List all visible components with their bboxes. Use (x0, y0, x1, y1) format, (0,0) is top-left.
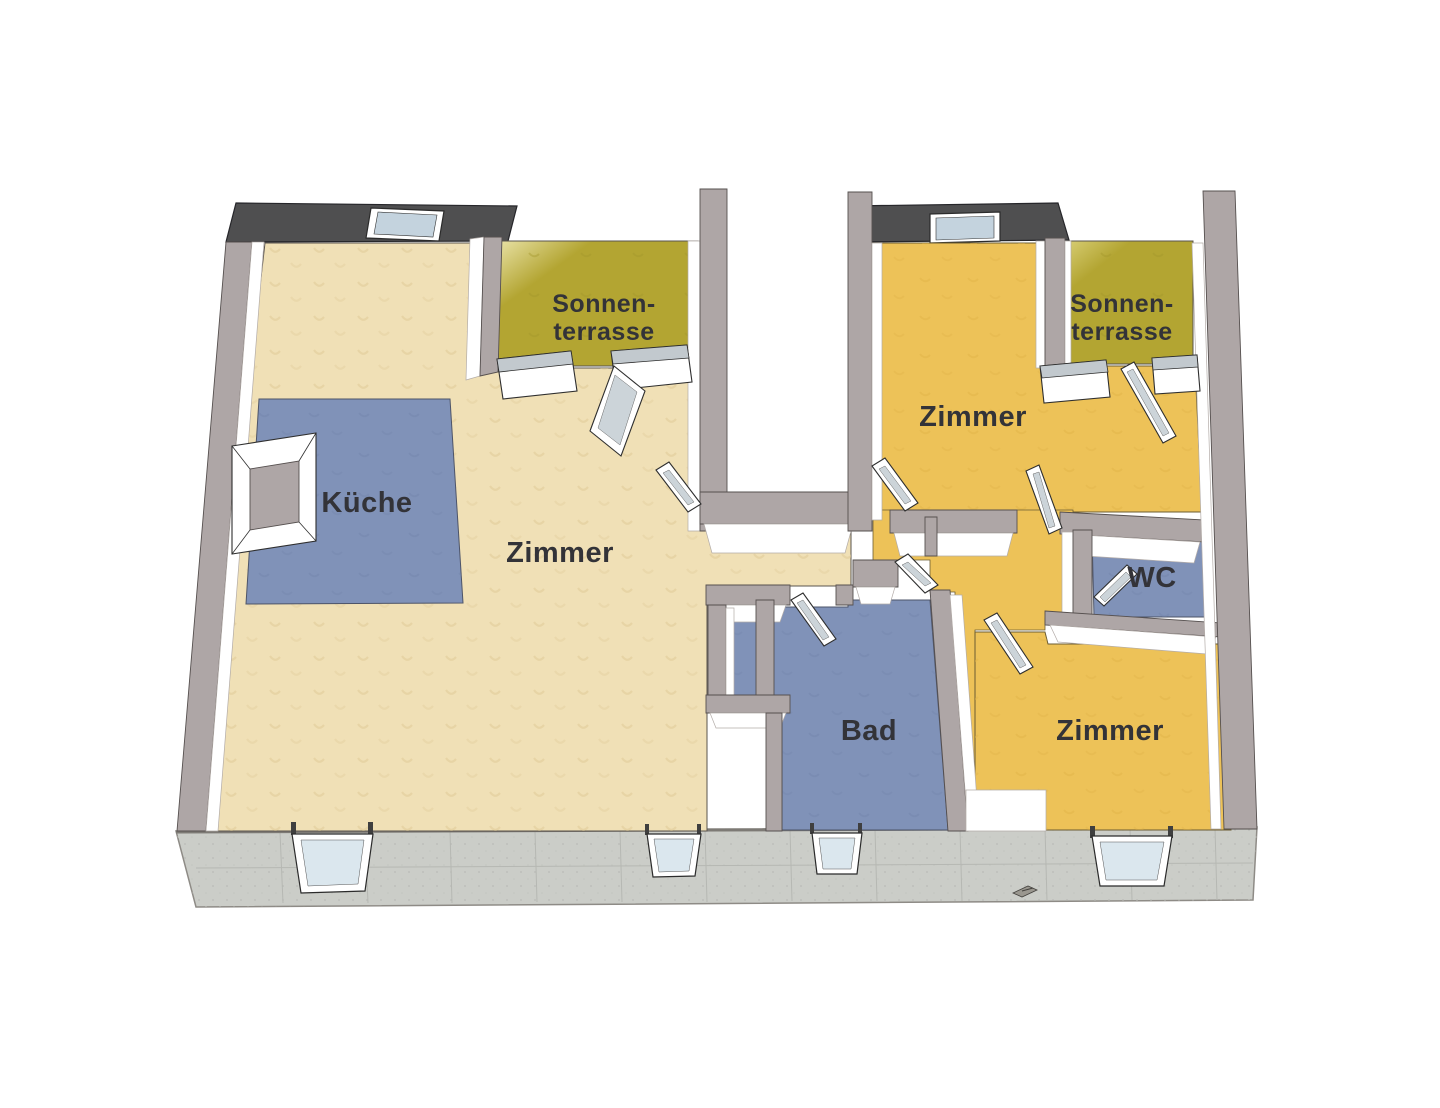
label-zimmer-unten-rechts: Zimmer (1056, 715, 1164, 747)
label-sonnenterrasse-links-2: terrasse (553, 318, 654, 346)
label-sonnenterrasse-links-1: Sonnen- (552, 290, 656, 318)
terrace-right-wall-face-l (1036, 241, 1045, 368)
void-bottom-wall-face (704, 524, 853, 553)
corridor-bottom-wall (853, 560, 898, 587)
terrace-right-door-unit-1 (1040, 360, 1110, 403)
bottom-step-face (966, 790, 1046, 831)
void-left-wall (700, 189, 727, 531)
label-sonnenterrasse-rechts-2: terrasse (1071, 318, 1172, 346)
skylight-left (366, 208, 444, 241)
label-zimmer-oben-rechts: Zimmer (919, 401, 1027, 433)
floorplan-canvas: Sonnen- terrasse Küche Zimmer Zimmer Son… (0, 0, 1440, 1108)
label-wc: WC (1127, 562, 1176, 594)
corridor-bottom-wall-face (856, 587, 895, 604)
wc-left-wall-face (1062, 532, 1073, 616)
bad-lobby-wall-1 (708, 605, 726, 702)
skylight-right (930, 212, 1000, 243)
label-sonnenterrasse-rechts-1: Sonnen- (1070, 290, 1174, 318)
void-bottom-wall (700, 492, 857, 524)
right-apt-left-wall (848, 192, 872, 531)
label-zimmer-links: Zimmer (506, 537, 614, 569)
label-bad: Bad (841, 715, 897, 747)
kitchen-window-bay (232, 433, 316, 554)
terrace-right-left-wall (1045, 238, 1065, 368)
terrace-right-door-unit-2 (1152, 355, 1200, 394)
roof-left (226, 203, 517, 242)
void-left-wall-face (688, 241, 700, 531)
corridor-top-wall-left (890, 510, 1017, 533)
bad-left-wall (766, 713, 782, 831)
label-kueche: Küche (321, 487, 412, 519)
bad-lobby-wall-2 (756, 600, 774, 695)
bad-lobby-bottom-wall (706, 695, 790, 713)
bad-top-wall-stub (836, 585, 853, 605)
corridor-top-wall-left-face (894, 533, 1013, 556)
wc-left-wall (1073, 530, 1092, 618)
terrace-left-door-unit-1 (497, 351, 577, 399)
bad-top-wall-left (706, 585, 790, 605)
roof-right (849, 203, 1069, 243)
bad-lobby-wall-1-face (726, 608, 734, 700)
corridor-wall-stub (925, 517, 937, 556)
terrace-left-wall (480, 237, 502, 376)
